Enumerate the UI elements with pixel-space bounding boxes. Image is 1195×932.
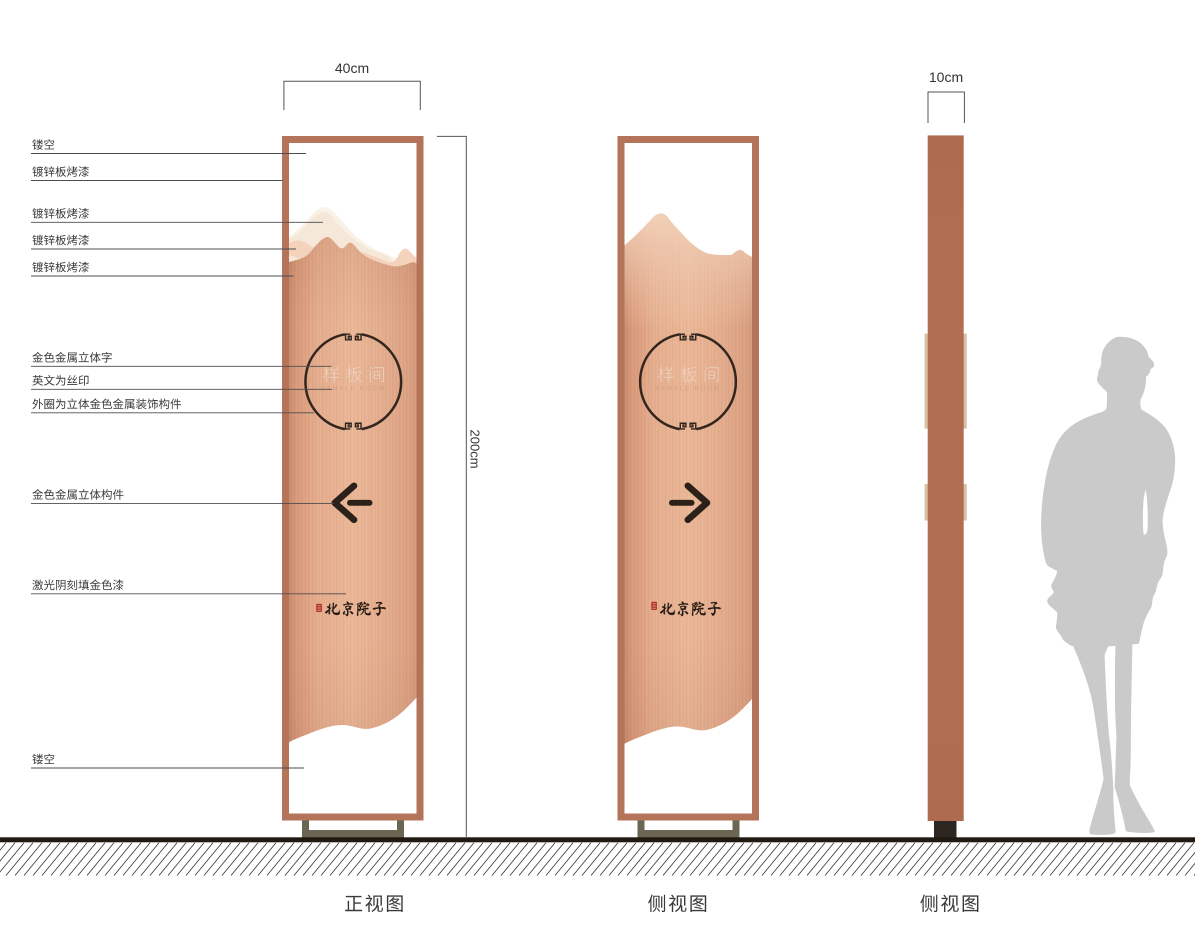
svg-text:10cm: 10cm (929, 69, 963, 85)
svg-text:40cm: 40cm (335, 60, 369, 76)
svg-text:200cm: 200cm (468, 430, 483, 469)
svg-text:SAMPLE ROOM: SAMPLE ROOM (655, 387, 721, 393)
